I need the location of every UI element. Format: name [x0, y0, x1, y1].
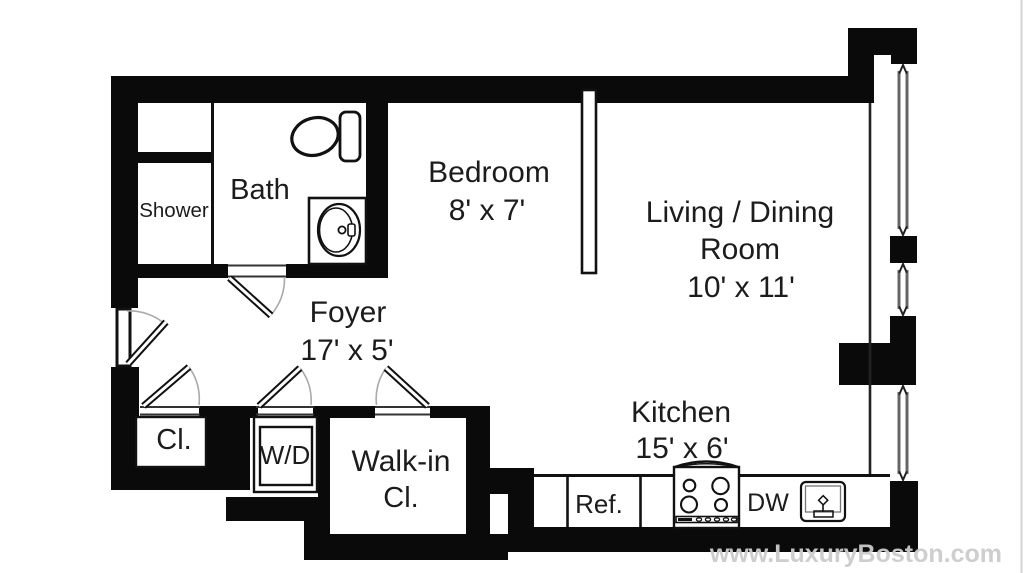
svg-text:Ref.: Ref.	[575, 489, 623, 519]
svg-text:Kitchen: Kitchen	[631, 396, 731, 429]
svg-text:Living / Dining: Living / Dining	[646, 196, 834, 229]
svg-text:17' x 5': 17' x 5'	[300, 334, 393, 367]
svg-text:Cl.: Cl.	[156, 424, 191, 456]
svg-text:10' x 11': 10' x 11'	[687, 271, 795, 304]
svg-text:Room: Room	[700, 233, 780, 266]
svg-text:www.LuxuryBoston.com: www.LuxuryBoston.com	[709, 540, 1002, 568]
svg-text:Shower: Shower	[139, 199, 209, 222]
svg-text:Bath: Bath	[230, 174, 290, 206]
svg-text:15' x 6': 15' x 6'	[635, 432, 728, 465]
svg-text:Bedroom: Bedroom	[428, 156, 550, 189]
svg-text:Foyer: Foyer	[310, 296, 387, 329]
svg-text:8' x 7': 8' x 7'	[449, 194, 526, 227]
svg-text:Cl.: Cl.	[383, 482, 418, 514]
svg-text:W/D: W/D	[260, 440, 311, 470]
svg-text:Walk-in: Walk-in	[352, 445, 451, 478]
svg-text:DW: DW	[747, 489, 789, 517]
